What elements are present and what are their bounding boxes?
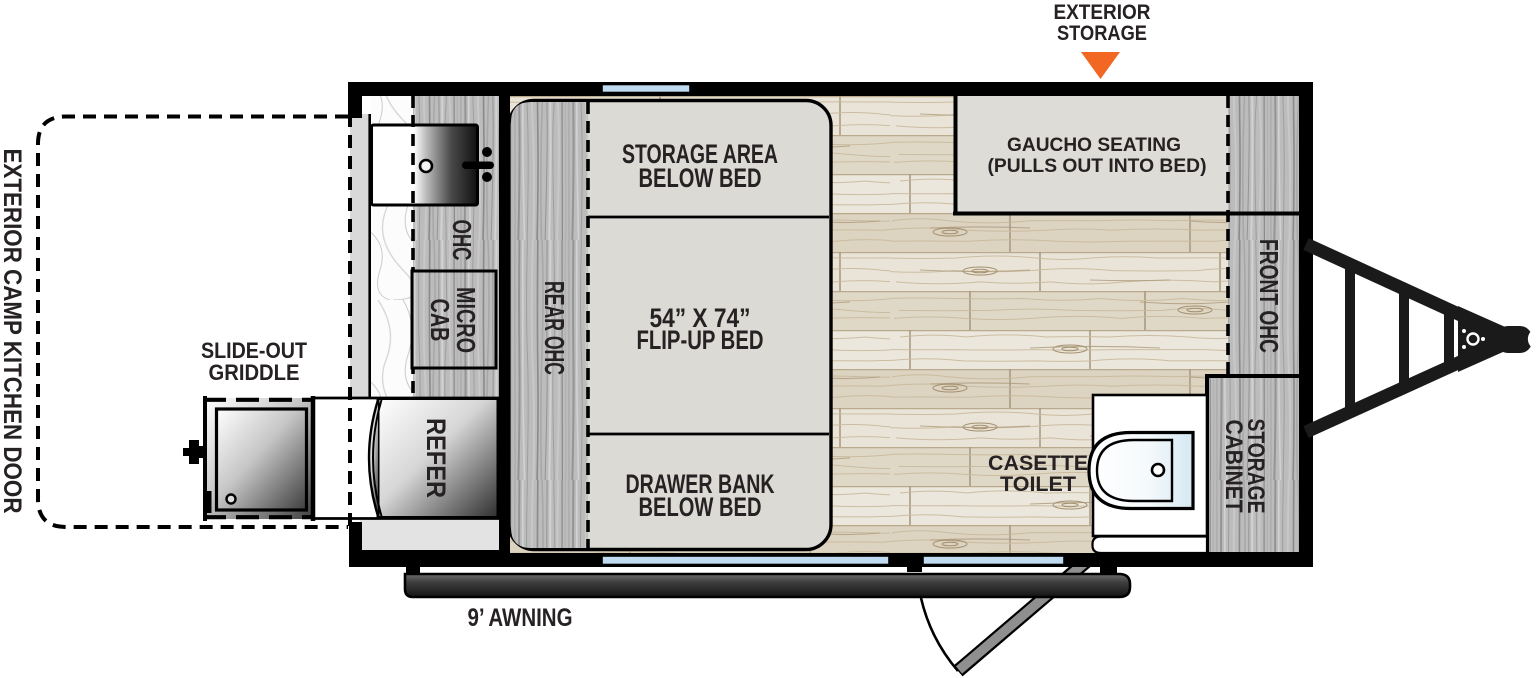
svg-text:GRIDDLE: GRIDDLE xyxy=(209,360,300,385)
svg-text:CASETTE: CASETTE xyxy=(988,452,1088,475)
svg-text:REAR OHC: REAR OHC xyxy=(539,281,570,375)
svg-text:BELOW BED: BELOW BED xyxy=(639,492,762,522)
svg-text:9’ AWNING: 9’ AWNING xyxy=(468,604,573,632)
svg-text:EXTERIOR: EXTERIOR xyxy=(1054,1,1151,24)
svg-text:(PULLS OUT INTO BED): (PULLS OUT INTO BED) xyxy=(988,155,1207,177)
svg-text:CABINET: CABINET xyxy=(1220,420,1247,513)
svg-text:OHC: OHC xyxy=(447,220,477,261)
svg-text:TOILET: TOILET xyxy=(1000,473,1076,496)
svg-text:FLIP-UP BED: FLIP-UP BED xyxy=(637,325,764,355)
svg-text:CAB: CAB xyxy=(425,299,455,342)
svg-text:STORAGE: STORAGE xyxy=(1057,22,1147,45)
svg-text:BELOW BED: BELOW BED xyxy=(639,163,762,193)
svg-text:EXTERIOR CAMP KITCHEN DOOR: EXTERIOR CAMP KITCHEN DOOR xyxy=(0,149,26,514)
svg-text:FRONT OHC: FRONT OHC xyxy=(1254,239,1284,353)
svg-text:GAUCHO SEATING: GAUCHO SEATING xyxy=(1007,134,1181,156)
svg-text:REFER: REFER xyxy=(421,418,451,498)
